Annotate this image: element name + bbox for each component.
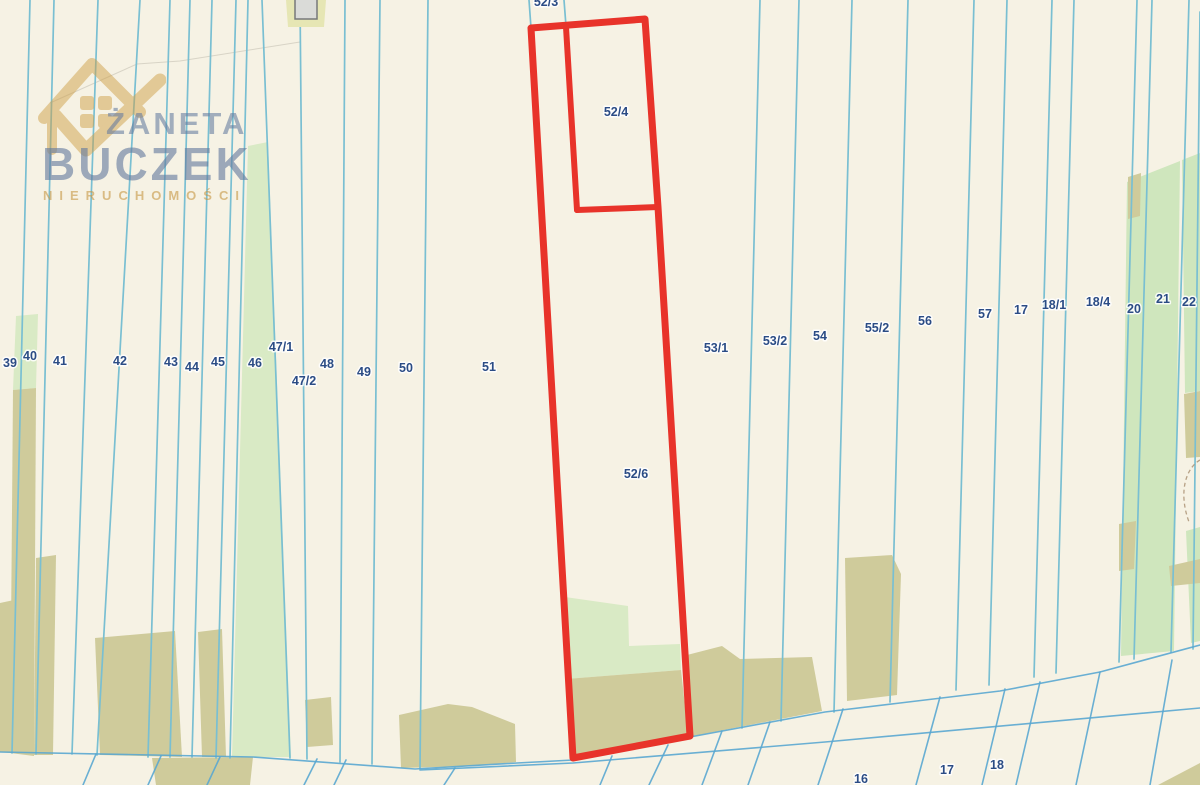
parcel-label-57: 57 [978, 307, 992, 321]
parcel-label-53-1: 53/1 [704, 341, 728, 355]
parcel-label-46: 46 [248, 356, 262, 370]
parcel-label-55-2: 55/2 [865, 321, 889, 335]
parcel-label-40: 40 [23, 349, 37, 363]
survey-hairline [50, 42, 300, 103]
parcel-label-56: 56 [918, 314, 932, 328]
parcel-label-53-2: 53/2 [763, 334, 787, 348]
parcel-label-22: 22 [1182, 295, 1196, 309]
parcel-label-41: 41 [53, 354, 67, 368]
building-footprint [286, 0, 326, 27]
green-areas [13, 142, 1200, 757]
parcel-label-39: 39 [3, 356, 17, 370]
parcel-label-18: 18 [990, 758, 1004, 772]
parcel-label-18-1: 18/1 [1042, 298, 1066, 312]
parcel-label-47-1: 47/1 [269, 340, 293, 354]
parcel-label-18-4: 18/4 [1086, 295, 1110, 309]
parcel-label-52-6: 52/6 [624, 467, 648, 481]
parcel-label-54: 54 [813, 329, 827, 343]
parcel-label-45: 45 [211, 355, 225, 369]
parcel-label-16: 16 [854, 772, 868, 785]
parcel-label-21: 21 [1156, 292, 1170, 306]
parcel-label-20: 20 [1127, 302, 1141, 316]
cadastral-map-canvas: 52/3394041424344454647/147/24849505153/1… [0, 0, 1200, 785]
parcel-label-43: 43 [164, 355, 178, 369]
parcel-label-44: 44 [185, 360, 199, 374]
parcel-label-50: 50 [399, 361, 413, 375]
map-viewport[interactable]: 52/3394041424344454647/147/24849505153/1… [0, 0, 1200, 785]
parcel-label-52-3: 52/3 [534, 0, 558, 9]
parcel-label-42: 42 [113, 354, 127, 368]
parcel-label-49: 49 [357, 365, 371, 379]
parcel-label-48: 48 [320, 357, 334, 371]
parcel-label-17: 17 [940, 763, 954, 777]
parcel-label-52-4: 52/4 [604, 105, 628, 119]
parcel-label-47-2: 47/2 [292, 374, 316, 388]
dashed-boundary-arc [1184, 460, 1200, 522]
olive-areas [0, 173, 1200, 785]
parcel-label-17: 17 [1014, 303, 1028, 317]
parcel-label-51: 51 [482, 360, 496, 374]
